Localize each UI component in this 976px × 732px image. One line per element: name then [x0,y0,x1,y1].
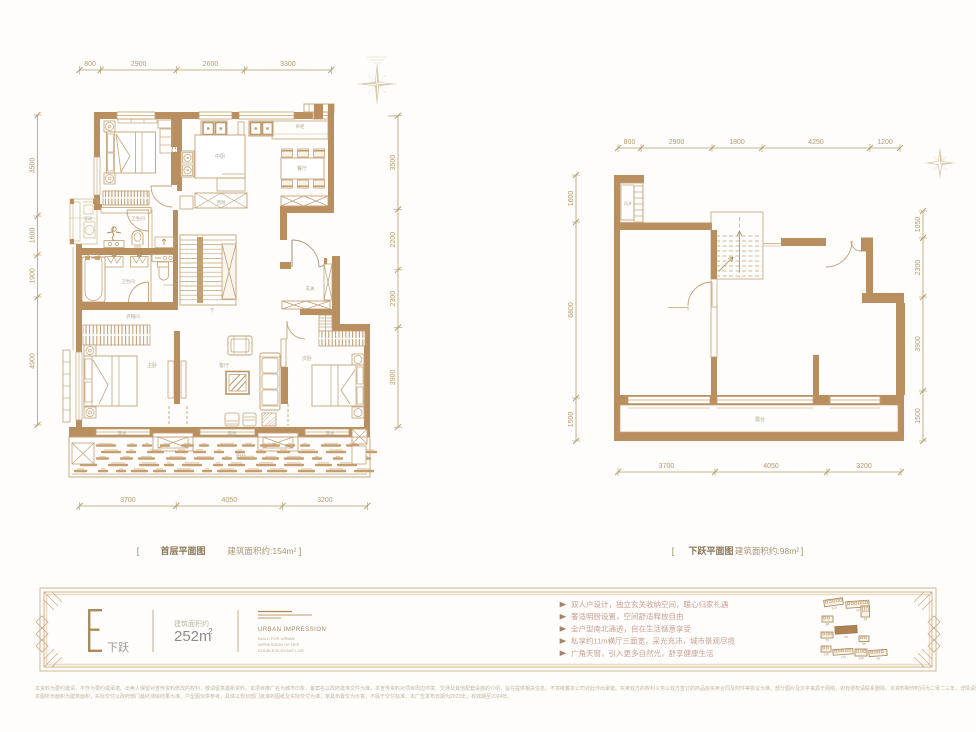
svg-text:1600: 1600 [30,228,37,244]
svg-text:双人户设计，独立玄关收纳空间，暖心归家礼遇: 双人户设计，独立玄关收纳空间，暖心归家礼遇 [571,599,729,609]
svg-text:5#: 5# [862,642,866,646]
svg-text:卫生间: 卫生间 [121,278,135,285]
svg-text:4250: 4250 [808,139,824,146]
svg-text:800: 800 [624,139,636,146]
svg-text:11#: 11# [841,655,847,659]
svg-text:3700: 3700 [120,497,136,504]
svg-text:1600: 1600 [568,191,575,207]
svg-text:2900: 2900 [131,61,147,68]
svg-text:下跃平面图: 下跃平面图 [688,545,733,556]
svg-text:2#: 2# [856,608,860,612]
svg-text:10#: 10# [858,657,864,661]
svg-text:衣帽间: 衣帽间 [126,313,140,320]
svg-text:3900: 3900 [390,369,397,385]
svg-text:建筑面积约: 建筑面积约 [174,619,209,628]
svg-text:1500: 1500 [915,408,922,424]
svg-text:客厅: 客厅 [219,362,229,369]
svg-text:建筑面积约:154m²: 建筑面积约:154m² [228,546,297,556]
svg-text:]: ] [299,546,302,556]
svg-text:DOUBLE ELEGANT LIVE: DOUBLE ELEGANT LIVE [258,648,304,653]
svg-text:3700: 3700 [659,463,675,470]
svg-text:252m: 252m [174,628,212,645]
svg-text:2900: 2900 [669,139,685,146]
svg-text:主卧: 主卧 [147,362,157,369]
svg-text:私享约11m横厅三面宽，采光充沛，城市景观尽揽: 私享约11m横厅三面宽，采光充沛，城市景观尽揽 [571,636,736,646]
svg-text:次卧: 次卧 [302,355,312,362]
svg-text:4900: 4900 [30,353,37,369]
svg-text:12#: 12# [831,606,837,611]
svg-text:1200: 1200 [877,139,893,146]
svg-text:13#: 13# [823,653,829,657]
svg-text:3500: 3500 [390,155,397,171]
svg-text:7#: 7# [825,639,829,643]
svg-text:玄关: 玄关 [306,285,315,292]
svg-text:首层平面图: 首层平面图 [160,545,205,556]
svg-text:广角天窗，引入更多自然光，舒享健康生活: 广角天窗，引入更多自然光，舒享健康生活 [571,648,714,658]
svg-text:中厨: 中厨 [215,153,225,160]
svg-text:下跃: 下跃 [107,640,129,654]
svg-text:本图所示面积为建筑面积，实际交付以政府部门最终测绘结果为准。: 本图所示面积为建筑面积，实际交付以政府部门最终测绘结果为准。户型图仅供参考，具体… [35,693,512,700]
svg-text:2300: 2300 [390,291,397,307]
svg-text:露台: 露台 [755,416,765,423]
svg-text:2200: 2200 [390,232,397,248]
svg-text:4#: 4# [876,656,880,660]
svg-text:6#: 6# [844,635,848,639]
svg-text:1050: 1050 [915,217,922,233]
svg-text:1500: 1500 [568,412,575,428]
svg-text:6800: 6800 [568,302,575,318]
svg-text:建筑面积约:98m²: 建筑面积约:98m² [735,546,799,556]
svg-text:飘窗: 飘窗 [228,430,237,437]
svg-text:1#: 1# [863,618,867,622]
svg-text:飘窗: 飘窗 [326,430,335,437]
svg-text:IMPRESSION OF LIFE: IMPRESSION OF LIFE [258,642,300,647]
svg-text:1800: 1800 [729,139,745,146]
svg-text:卫生间: 卫生间 [131,215,145,222]
svg-text:800: 800 [84,61,96,68]
svg-text:8#: 8# [826,623,830,627]
svg-text:3200: 3200 [856,463,872,470]
svg-text:4050: 4050 [222,497,238,504]
svg-text:吊柜: 吊柜 [296,123,305,130]
svg-text:风井: 风井 [624,200,632,206]
svg-text:3300: 3300 [280,61,296,68]
svg-text:3200: 3200 [317,497,333,504]
svg-text:餐厅: 餐厅 [297,165,307,172]
svg-text:1900: 1900 [30,268,37,284]
svg-text:URBAN IMPRESSION: URBAN IMPRESSION [258,627,326,633]
svg-text:全户型南北通透，自在生活惬意享受: 全户型南北通透，自在生活惬意享受 [571,623,691,633]
svg-text:2300: 2300 [915,260,922,276]
svg-text:飘窗: 飘窗 [118,430,127,437]
svg-text:3900: 3900 [915,336,922,352]
svg-text:3500: 3500 [30,158,37,174]
svg-text:本资料为要约邀请，不作为要约或承诺。出卖人保留对宣传资料修改: 本资料为要约邀请，不作为要约或承诺。出卖人保留对宣传资料修改的权利，敬请留意最新… [35,685,976,692]
svg-text:BUILD FOR URBAN: BUILD FOR URBAN [258,636,295,641]
svg-text:2600: 2600 [203,61,219,68]
svg-text:下: 下 [209,308,214,314]
svg-text:奢适明厨设置，空间舒适释放自由: 奢适明厨设置，空间舒适释放自由 [571,611,684,621]
svg-text:4050: 4050 [763,463,779,470]
svg-text:]: ] [801,546,804,556]
svg-text:2: 2 [208,626,213,636]
